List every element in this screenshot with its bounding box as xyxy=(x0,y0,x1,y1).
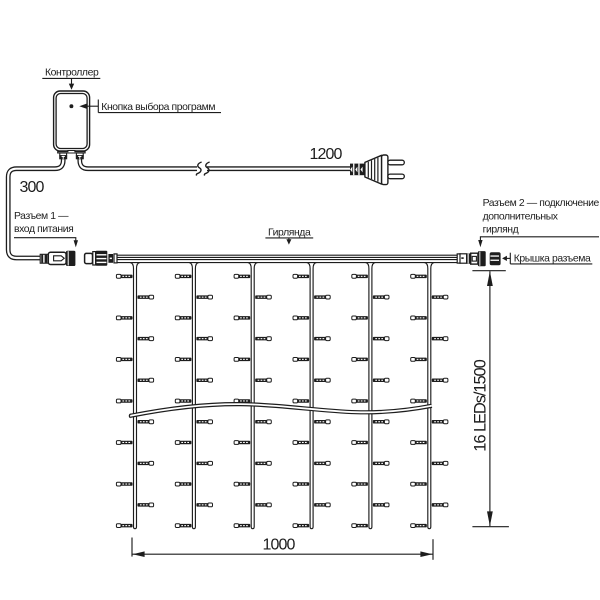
svg-text:Разъем 1 —: Разъем 1 — xyxy=(14,211,69,222)
svg-text:Крышка разъема: Крышка разъема xyxy=(514,254,591,265)
svg-text:гирлянд: гирлянд xyxy=(483,225,519,236)
svg-text:вход питания: вход питания xyxy=(14,224,73,235)
svg-text:16 LEDs/1500: 16 LEDs/1500 xyxy=(471,359,489,451)
svg-text:1200: 1200 xyxy=(310,146,343,163)
svg-text:Разъем 2 — подключение: Разъем 2 — подключение xyxy=(483,198,600,209)
svg-text:Контроллер: Контроллер xyxy=(45,68,99,79)
svg-text:Гирлянда: Гирлянда xyxy=(268,227,311,238)
svg-text:1000: 1000 xyxy=(263,537,296,554)
svg-text:300: 300 xyxy=(20,179,45,196)
svg-text:дополнительных: дополнительных xyxy=(483,211,559,222)
svg-text:Кнопка выбора программ: Кнопка выбора программ xyxy=(101,101,215,113)
